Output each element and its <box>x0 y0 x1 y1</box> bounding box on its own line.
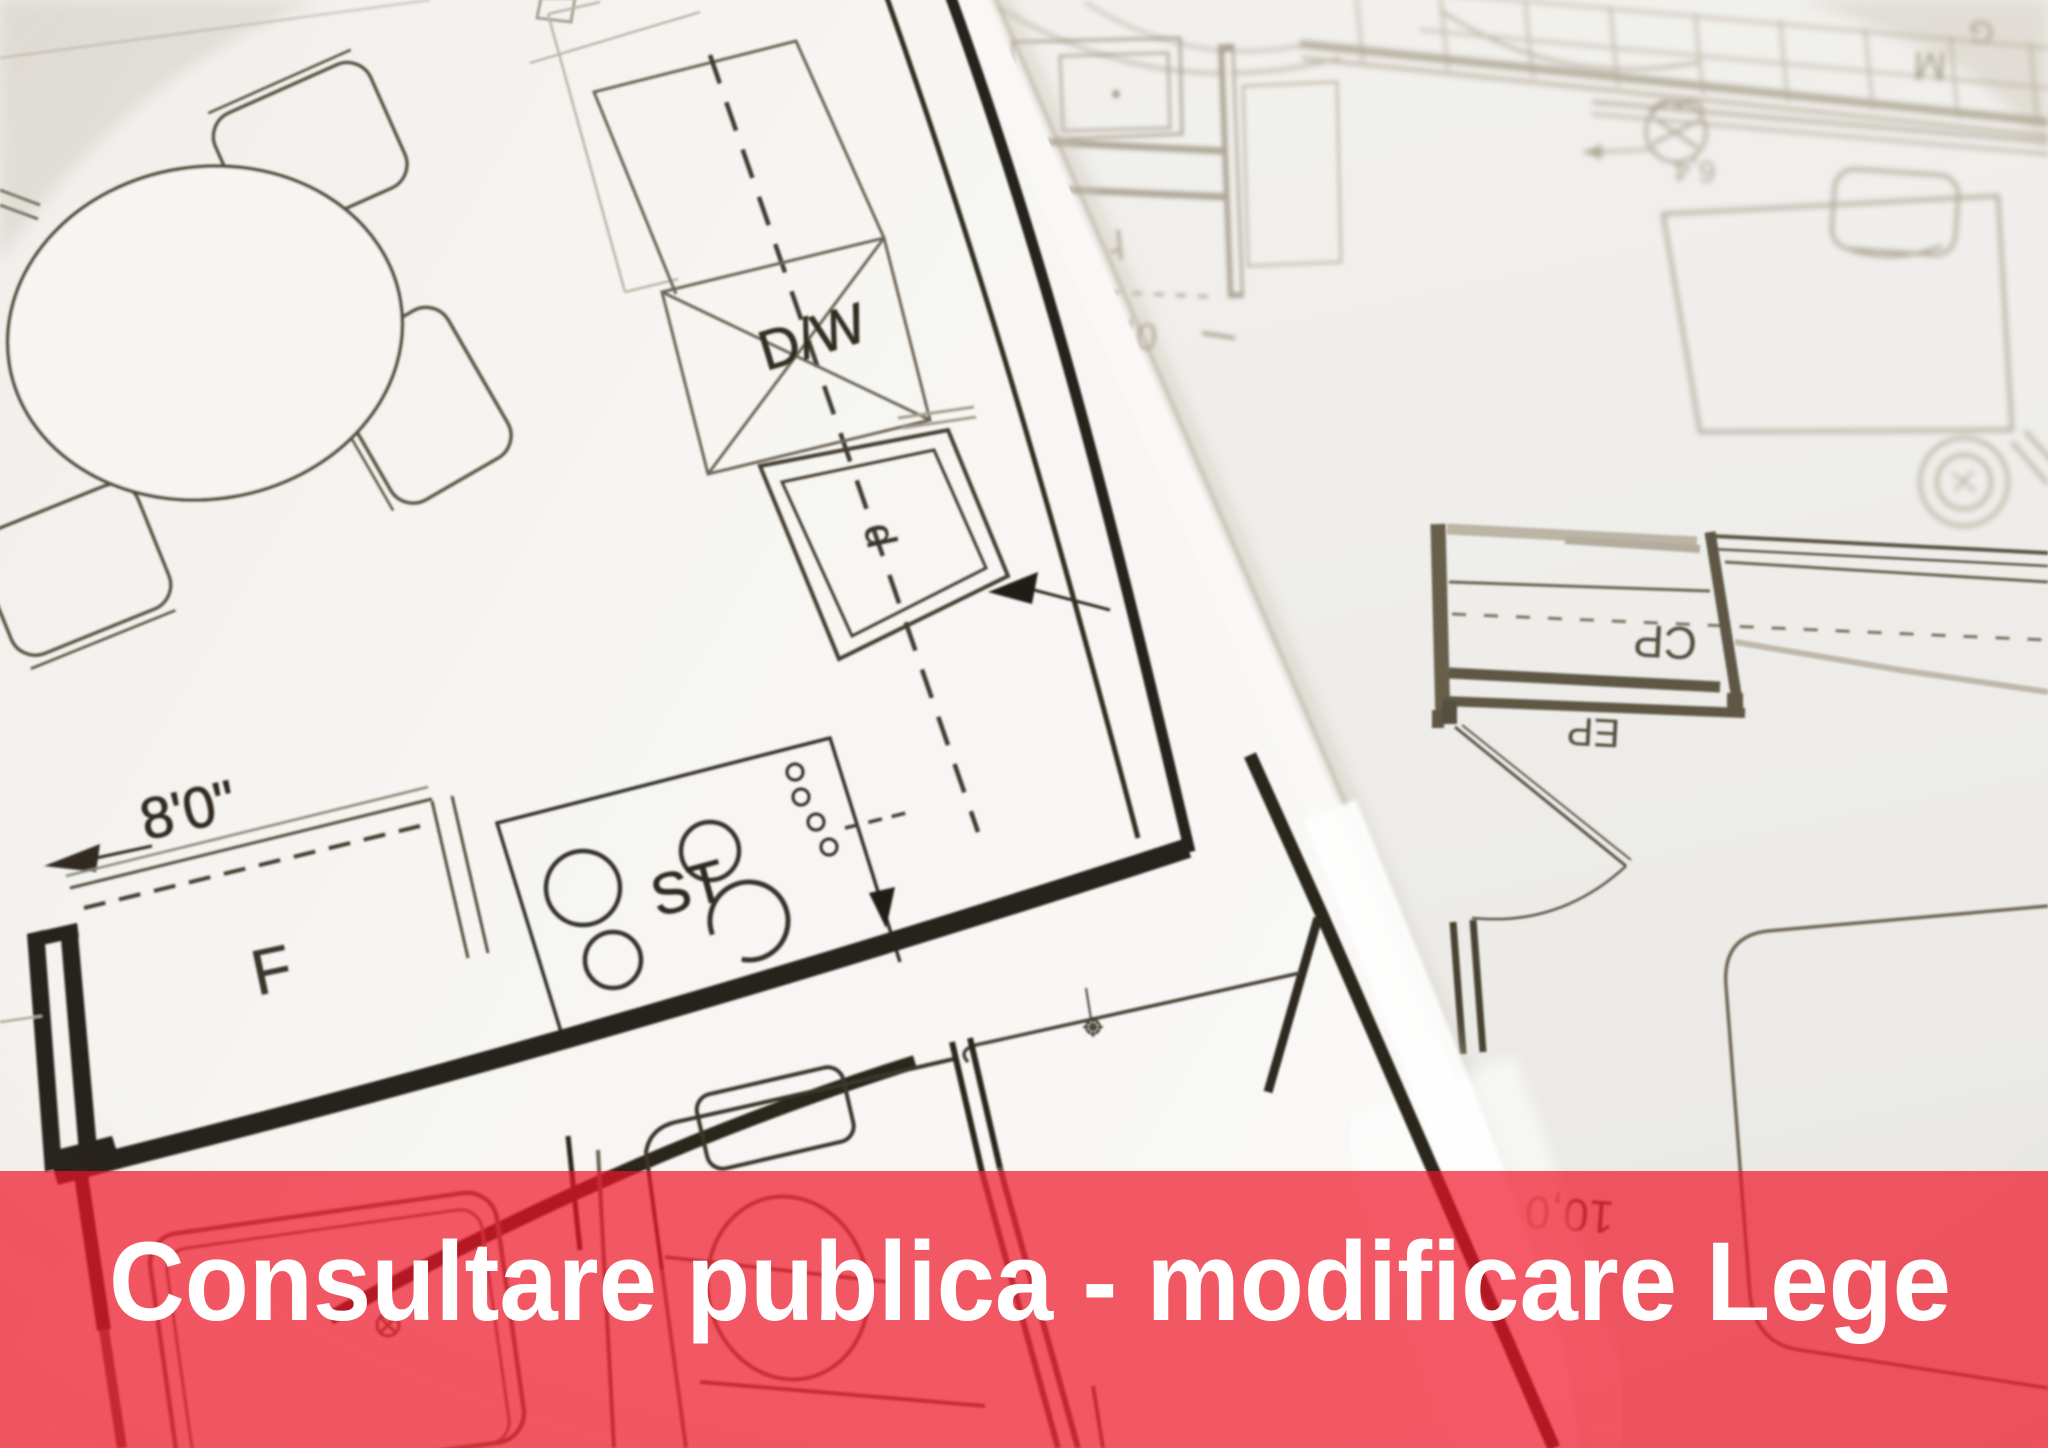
svg-text:Consultare publica - modificar: Consultare publica - modificare Lege <box>109 1219 1951 1344</box>
